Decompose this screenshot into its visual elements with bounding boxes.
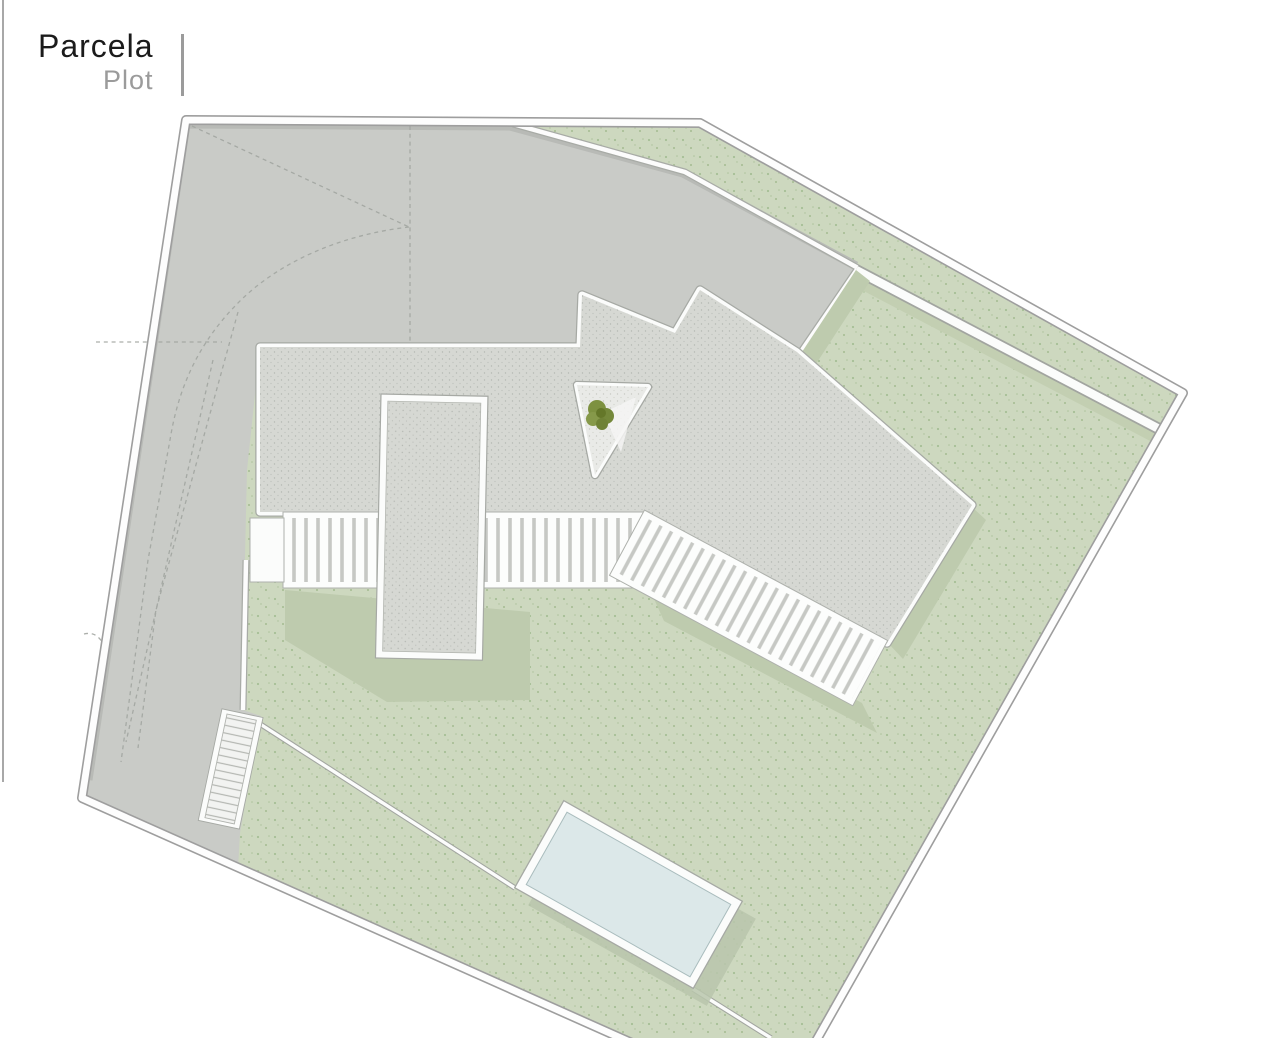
roof-volume-rectangle <box>375 394 488 660</box>
terrace-landing <box>250 518 284 582</box>
page-subtitle: Plot <box>38 64 154 96</box>
site-plan-drawing <box>0 0 1263 1038</box>
site-plan-page: Parcela Plot <box>0 0 1263 1038</box>
title-block: Parcela Plot <box>38 28 154 96</box>
page-title: Parcela <box>38 28 154 64</box>
